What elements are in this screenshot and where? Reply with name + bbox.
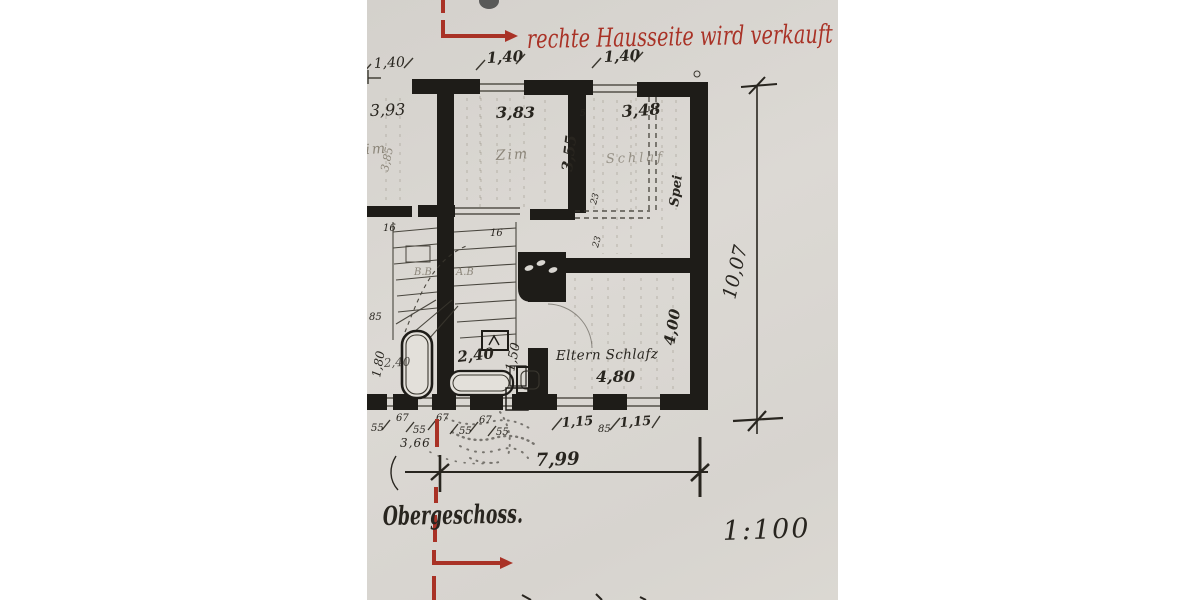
dim-room-mid-width: 3,83 [496, 103, 535, 122]
dim-eltern-width: 4,80 [596, 367, 635, 386]
dim-67a: 67 [396, 413, 409, 424]
dim-wall-23a: 23 [589, 192, 602, 207]
dim-eltern-depth: 4,00 [660, 307, 684, 347]
stair-label-ab: A.B [455, 267, 474, 278]
stair-treads [393, 222, 516, 348]
scan-blob [479, 0, 499, 9]
dim-bath-width: 2,40 [456, 344, 496, 366]
dim-room-left-width: 3,93 [369, 100, 405, 120]
dim-top-left: 1,40 [373, 54, 405, 72]
floor-title: Obergeschoss. [383, 500, 524, 532]
red-arrow-top-head [505, 30, 518, 42]
dim-wall-23b: 23 [591, 235, 604, 250]
dim-115b: 1,15 [619, 414, 652, 431]
page-background: 10,07 7,99 [0, 0, 1200, 600]
room-label-spei: Spei [667, 174, 686, 207]
room-label-zim-left: Zim [367, 141, 388, 159]
door-swing-arc [548, 304, 592, 348]
dim-55b: 55 [413, 425, 426, 436]
chimney-block [518, 252, 566, 302]
red-arrow-bottom-shaft [434, 550, 500, 563]
dim-115a: 1,15 [561, 414, 594, 431]
dim-house-width: 7,99 [535, 448, 580, 471]
dim-top-mid: 1,40 [486, 47, 524, 67]
dim-room-right-width: 3,48 [621, 99, 661, 121]
dim-left-segment: 3,66 [400, 436, 431, 450]
dim-55a: 55 [371, 423, 384, 434]
dim-house-depth: 10,07 [718, 242, 752, 301]
small-circle-mark [694, 71, 700, 77]
dim-niche: 1,50 [503, 341, 524, 372]
stair-label-16b: 16 [490, 228, 503, 239]
stair-label-bb: B.B [413, 267, 432, 278]
stair-label-16a: 16 [383, 223, 396, 234]
scale-label: 1:100 [722, 513, 811, 547]
floorplan-photo: 10,07 7,99 [367, 0, 838, 600]
dim-wall-5: 5 [580, 109, 586, 119]
stair-label-85: 85 [369, 312, 382, 323]
red-arrow-top-shaft [443, 20, 505, 36]
dim-bath-width-left: 2,40 [382, 355, 411, 370]
floorplan-drawing: 10,07 7,99 [367, 0, 838, 600]
room-label-zim-mid: Zim [494, 146, 529, 164]
room-label-eltern: Eltern Schlafz [555, 346, 659, 364]
red-arrow-bottom-head [500, 557, 513, 569]
second-tub [449, 371, 513, 395]
red-annotation-text: rechte Hausseite wird verkauft [527, 20, 834, 55]
bottom-edge-cut-marks [522, 594, 646, 600]
dim-55c: 55 [459, 426, 472, 437]
dim-85: 85 [598, 424, 611, 435]
